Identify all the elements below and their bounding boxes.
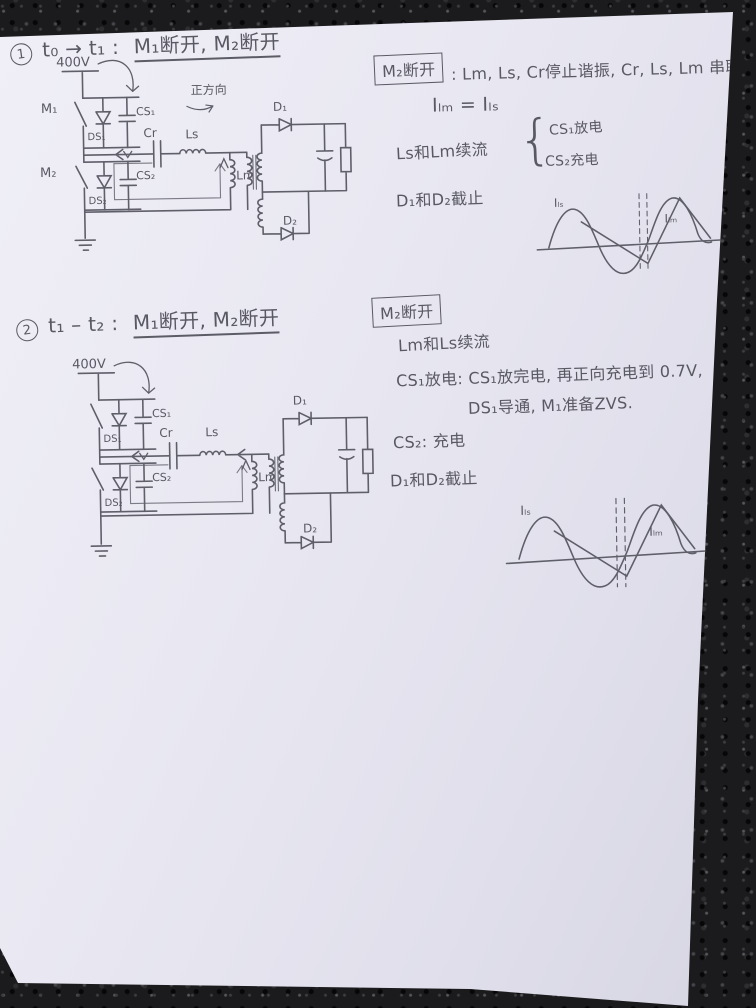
capacitor-cs1-2 bbox=[135, 399, 152, 449]
wave1-triangle-ilm bbox=[581, 197, 711, 264]
circuit1-wires: 400V M₁ DS₁ CS₁ M₂ DS₂ CS₂ bbox=[38, 51, 352, 251]
note2-line3: DS₁导通, M₁准备ZVS. bbox=[468, 389, 634, 419]
note1-line1: : Lm, Ls, Cr停止谐振, Cr, Ls, Lm 串联; bbox=[451, 53, 748, 85]
current-loop-path bbox=[114, 162, 226, 200]
lm-current-arrow bbox=[220, 159, 228, 168]
note1-row: M₂断开 : Lm, Ls, Cr停止谐振, Cr, Ls, Lm 串联; bbox=[374, 54, 747, 84]
ds2-label-2: DS₂ bbox=[104, 498, 122, 509]
note2-box-wrap: M₂断开 bbox=[372, 296, 441, 326]
waveform-sketch-1: Iₗₛ Iₗₘ bbox=[531, 184, 756, 280]
cs2-label-2: CS₂ bbox=[152, 471, 171, 484]
note1-box: M₂断开 bbox=[373, 53, 444, 86]
section2-switch-states: M₁断开, M₂断开 bbox=[133, 305, 280, 338]
wave2-ilm-label: Iₗₘ bbox=[649, 524, 663, 539]
capacitor-cs2 bbox=[120, 161, 137, 209]
capacitor-cr-2 bbox=[170, 442, 200, 469]
mosfet-m1-switch-2 bbox=[91, 404, 102, 428]
mosfet-m2-switch-2 bbox=[92, 468, 103, 490]
transformer-secondary-upper bbox=[256, 125, 262, 192]
ls-label-2: Ls bbox=[205, 425, 218, 439]
supply-rail bbox=[62, 71, 98, 99]
d1-label: D₁ bbox=[273, 100, 287, 114]
positive-direction-arrow bbox=[187, 105, 213, 112]
m2-label: M₂ bbox=[40, 166, 57, 181]
charge-arrow bbox=[98, 60, 139, 92]
output-capacitor bbox=[316, 124, 333, 191]
wave2-ils-label: Iₗₛ bbox=[520, 503, 531, 518]
m1-label: M₁ bbox=[41, 102, 58, 117]
wave1-ilm-label: Iₗₘ bbox=[664, 211, 677, 225]
note2-line4: CS₂: 充电 bbox=[393, 427, 466, 454]
tank-line-left bbox=[84, 149, 154, 160]
rectifier-diode-d1 bbox=[261, 118, 345, 131]
photo-of-handwritten-notes: { "colors": {"ink": "#595963", "paper": … bbox=[0, 0, 756, 1008]
supply-voltage-label-2: 400V bbox=[72, 357, 106, 373]
ls-label: Ls bbox=[185, 127, 198, 141]
capacitor-cs1 bbox=[119, 97, 136, 147]
positive-direction-label: 正方向 bbox=[191, 82, 227, 98]
note1-line3: Ls和Lm续流 bbox=[395, 136, 488, 165]
inductor-ls-2 bbox=[200, 449, 269, 460]
circuit-diagram-2: 400V DS₁ CS₁ DS₂ CS₂ Cr Ls Lm bbox=[40, 349, 394, 590]
section1-number: 1 bbox=[9, 41, 34, 66]
d2-label-2: D₂ bbox=[303, 521, 317, 535]
note1-brace-item2: CS₂充电 bbox=[545, 149, 599, 171]
mosfet-m2-switch bbox=[76, 166, 87, 188]
output-capacitor-2 bbox=[338, 418, 355, 493]
rectifier-diode-d1-2 bbox=[283, 411, 367, 424]
mosfet-m1-switch bbox=[75, 102, 86, 126]
paper-sheet: 1t₀ → t₁ : M₁断开, M₂断开 400V M₁ DS₁ CS₁ M₂… bbox=[0, 0, 756, 1008]
capacitor-cr bbox=[154, 141, 180, 167]
transformer-core bbox=[253, 155, 257, 189]
load-resistor-2 bbox=[283, 417, 373, 494]
note2-box: M₂断开 bbox=[371, 294, 442, 328]
transformer-core-2 bbox=[275, 457, 279, 491]
cr-label: Cr bbox=[143, 126, 157, 140]
supply-voltage-label: 400V bbox=[56, 55, 90, 71]
ds1-label: DS₁ bbox=[87, 132, 105, 143]
charge-arrow-2 bbox=[114, 362, 155, 394]
section2-title: 2t₁ – t₂ : M₁断开, M₂断开 bbox=[16, 301, 280, 341]
section2-number: 2 bbox=[15, 317, 40, 342]
wave1-dashed-markers bbox=[639, 194, 648, 272]
inductor-ls bbox=[180, 149, 247, 154]
wave1-axis bbox=[537, 238, 750, 249]
note1-brace-item1: CS₁放电 bbox=[548, 116, 603, 140]
circuit2-wires: 400V DS₁ CS₁ DS₂ CS₂ Cr Ls Lm bbox=[72, 352, 374, 556]
d1-label-2: D₁ bbox=[293, 393, 307, 407]
supply-rail-2 bbox=[78, 373, 114, 401]
cr-label-2: Cr bbox=[159, 426, 173, 440]
cs2-label: CS₂ bbox=[136, 169, 155, 182]
section2-interval: t₁ – t₂ : bbox=[48, 311, 119, 337]
wave1-ils-label: Iₗₛ bbox=[554, 196, 564, 210]
waveform-sketch-2: Iₗₛ Iₗₘ bbox=[491, 490, 755, 595]
transformer-secondary-lower-2 bbox=[280, 494, 286, 543]
note1-line2: Iₗₘ = Iₗₛ bbox=[432, 93, 500, 116]
note2-line2: CS₁放电: CS₁放完电, 再正向充电到 0.7V, bbox=[396, 357, 703, 392]
ds2-label: DS₂ bbox=[88, 196, 106, 207]
load-resistor bbox=[261, 124, 351, 193]
note2-line5: D₁和D₂截止 bbox=[390, 464, 478, 491]
tank-line-left-2 bbox=[100, 451, 170, 462]
ground-symbol bbox=[75, 210, 96, 250]
note1-line4: D₁和D₂截止 bbox=[396, 184, 484, 211]
circuit-diagram-1: 400V M₁ DS₁ CS₁ M₂ DS₂ CS₂ bbox=[38, 47, 382, 288]
note2-line1: Lm和Ls续流 bbox=[397, 328, 490, 357]
ds1-label-2: DS₁ bbox=[103, 434, 121, 445]
current-loop-path-2 bbox=[130, 463, 248, 503]
cs1-label-2: CS₁ bbox=[152, 407, 171, 420]
ground-symbol-2 bbox=[91, 512, 112, 556]
transformer-secondary-lower bbox=[258, 192, 264, 234]
cs1-label: CS₁ bbox=[136, 105, 155, 118]
transformer-secondary-upper-2 bbox=[278, 419, 284, 494]
d2-label: D₂ bbox=[283, 213, 297, 227]
lm-current-arrow-2 bbox=[242, 460, 250, 469]
capacitor-cs2-2 bbox=[136, 463, 153, 511]
